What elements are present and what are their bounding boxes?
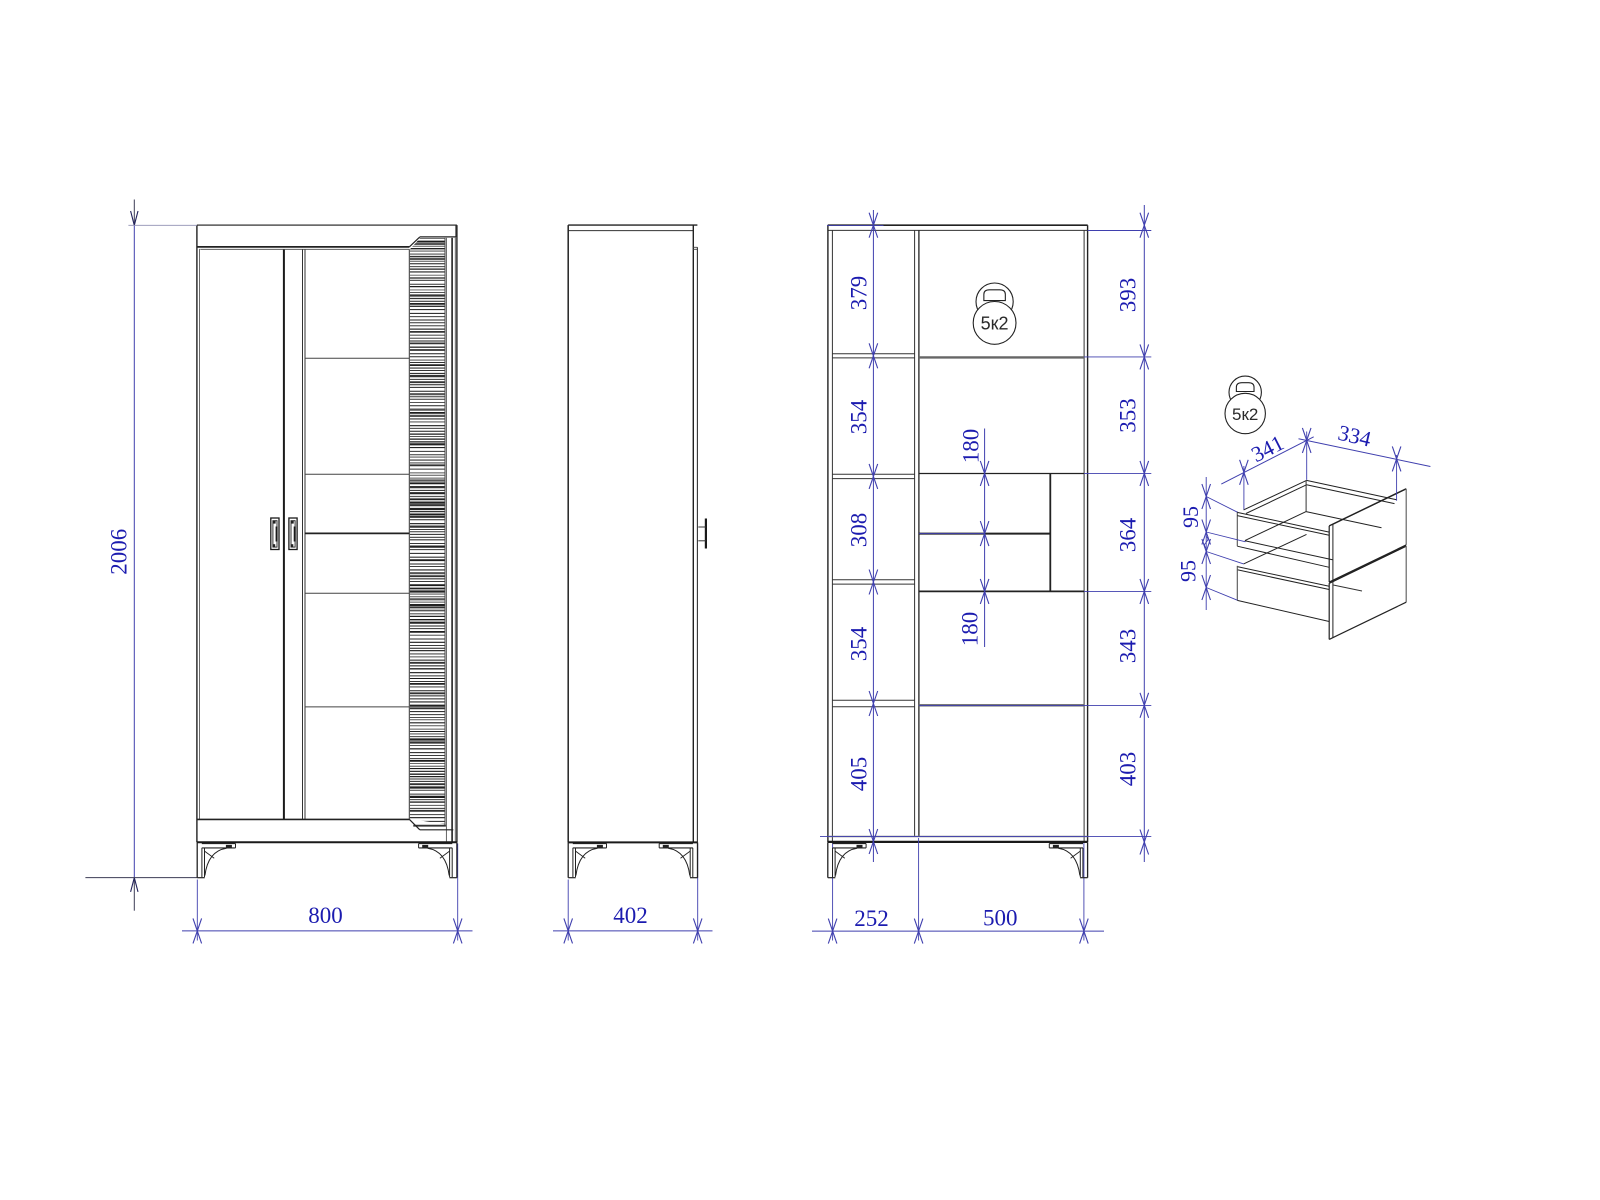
svg-text:379: 379	[846, 276, 871, 311]
svg-text:343: 343	[1116, 629, 1141, 664]
svg-text:354: 354	[846, 399, 871, 434]
svg-text:405: 405	[846, 757, 871, 792]
svg-text:2006: 2006	[106, 529, 131, 575]
svg-text:393: 393	[1116, 278, 1141, 313]
svg-text:180: 180	[958, 429, 983, 464]
svg-text:308: 308	[846, 513, 871, 548]
svg-text:353: 353	[1116, 398, 1141, 433]
svg-text:334: 334	[1336, 420, 1374, 452]
svg-text:95: 95	[1175, 560, 1200, 582]
svg-text:500: 500	[983, 906, 1018, 931]
svg-text:252: 252	[854, 906, 889, 931]
svg-text:402: 402	[613, 903, 648, 928]
svg-text:403: 403	[1116, 752, 1141, 787]
svg-text:364: 364	[1116, 517, 1141, 552]
svg-text:5к2: 5к2	[981, 313, 1009, 333]
svg-text:180: 180	[957, 612, 982, 647]
svg-text:95: 95	[1178, 506, 1203, 528]
svg-text:341: 341	[1247, 430, 1288, 467]
svg-text:800: 800	[308, 903, 343, 928]
svg-text:5к2: 5к2	[1232, 405, 1258, 424]
svg-text:354: 354	[846, 626, 871, 661]
